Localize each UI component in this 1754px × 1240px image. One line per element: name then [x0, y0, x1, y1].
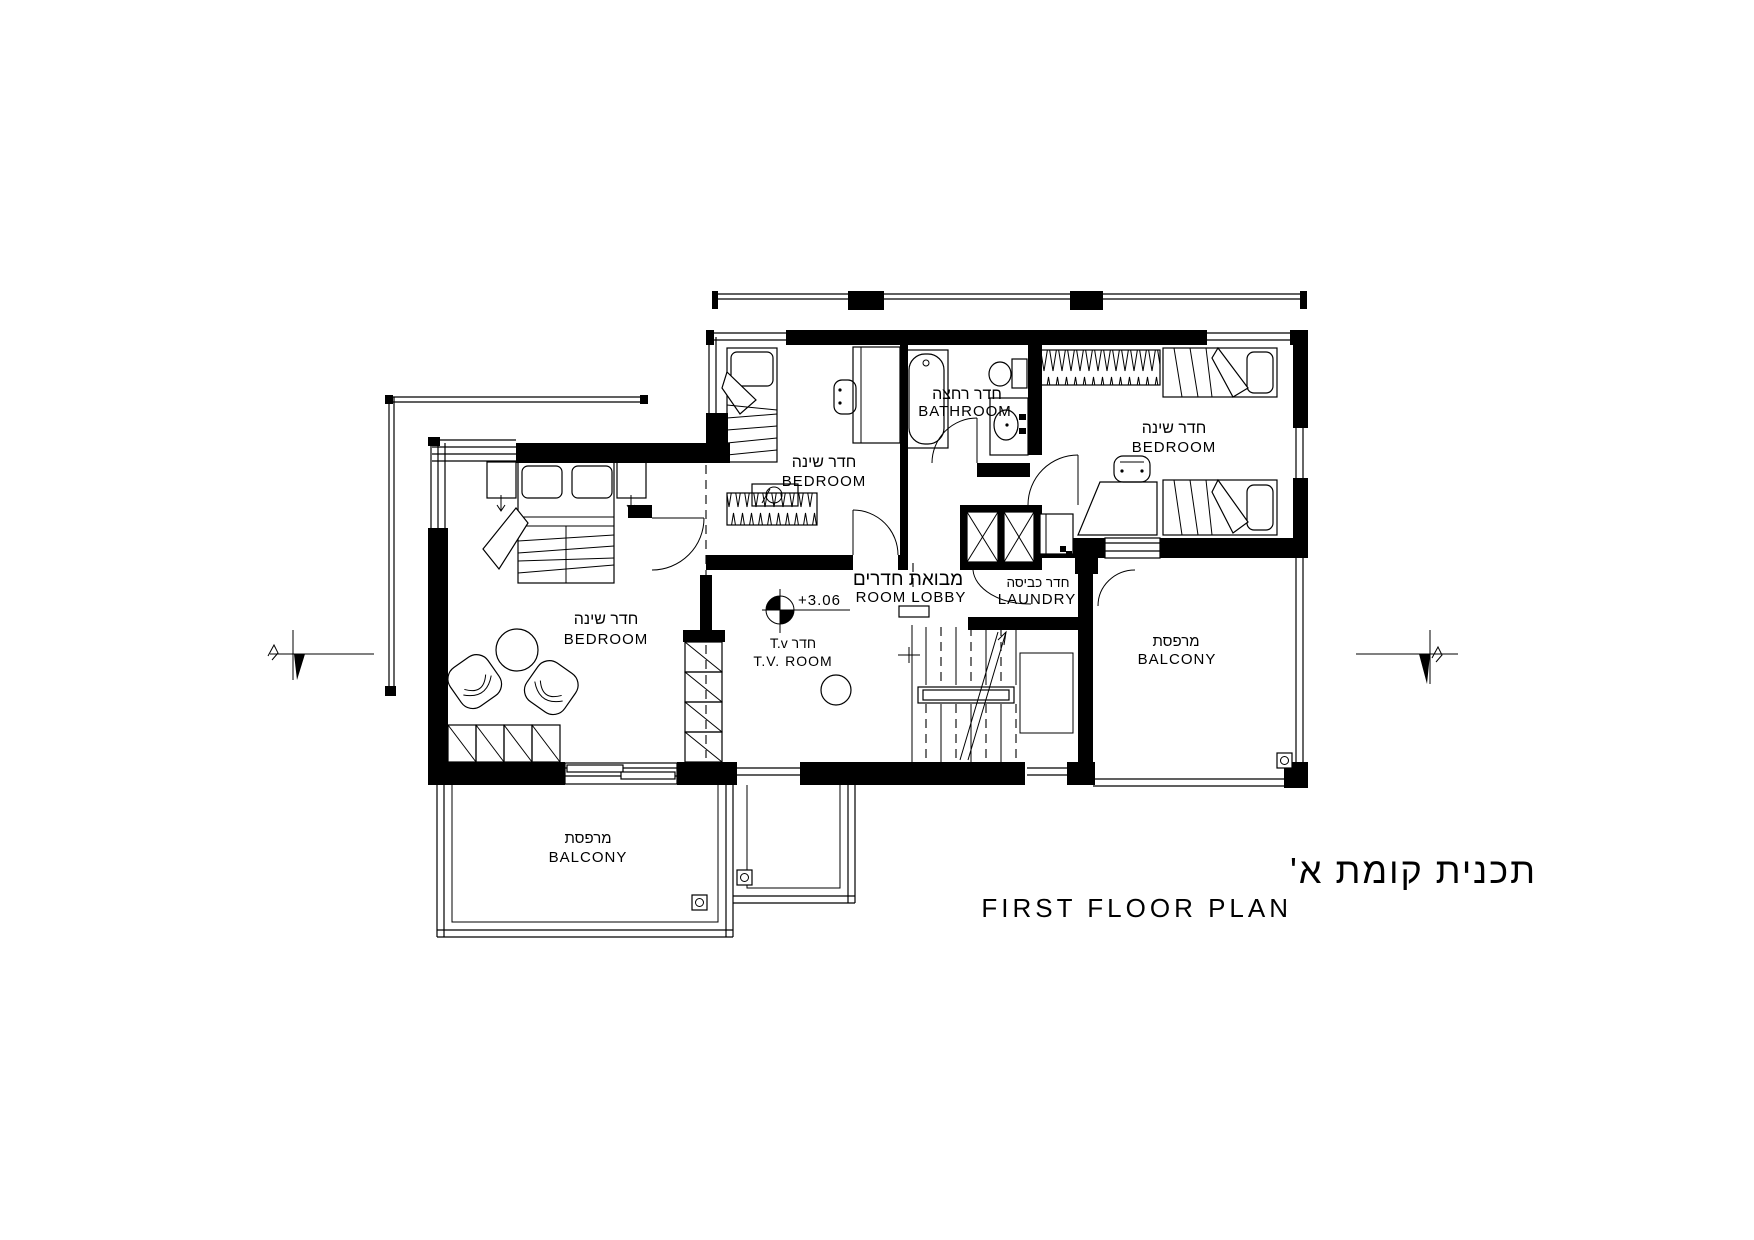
- closet-hanging: [727, 493, 817, 525]
- side-table: [821, 675, 851, 705]
- bedroom-top-label-en: BEDROOM: [782, 473, 867, 490]
- walls: [385, 291, 1308, 788]
- pillow: [522, 466, 562, 498]
- toilet-bowl: [989, 362, 1011, 386]
- top-bedroom-furniture: [722, 347, 900, 525]
- bedroom-master-label-he: חדר שינה: [574, 611, 639, 628]
- bathroom-label-en: BATHROOM: [918, 403, 1012, 420]
- laundry-label-he: חדר כביסה: [1006, 575, 1069, 590]
- balcony-right-label-he: מרפסת: [1152, 633, 1199, 650]
- drain: [737, 870, 752, 885]
- wardrobe-column: [685, 642, 722, 762]
- tub-drain: [923, 360, 929, 366]
- laundry-label-en: LAUNDRY: [998, 591, 1076, 608]
- bedroom-top-door-arc: [853, 510, 898, 555]
- bedroom-right-door-arc: [1028, 455, 1078, 505]
- blanket-fold: [1212, 348, 1248, 397]
- bedroom-master-label-en: BEDROOM: [564, 631, 649, 648]
- section-marker-right: [1356, 630, 1458, 684]
- bathroom-label-he: חדר רחצה: [932, 386, 1002, 403]
- wardrobe: [448, 725, 560, 762]
- nightstand: [617, 462, 646, 498]
- level-value: +3.06: [798, 592, 841, 609]
- toilet-tank: [1012, 359, 1027, 388]
- nightstand: [487, 462, 516, 498]
- blanket-fold: [1212, 480, 1248, 533]
- bedroom-top-label-he: חדר שינה: [792, 454, 857, 471]
- tv-room-label-he: חדר T.v: [770, 635, 816, 651]
- desk-chair: [1114, 456, 1150, 482]
- drain: [1277, 753, 1292, 768]
- balcony-right: [1093, 558, 1303, 786]
- closet-hanging: [1035, 350, 1160, 385]
- drain: [692, 895, 707, 910]
- round-table: [496, 629, 538, 671]
- arrow-down-icon: [497, 495, 505, 511]
- sheet-title-english: FIRST FLOOR PLAN: [981, 893, 1292, 923]
- balcony-lower-label-en: BALCONY: [549, 849, 628, 866]
- floor-plan: +3.06 חדר רחצה BATHROOM חדר שינה BEDROOM…: [0, 0, 1754, 1240]
- master-door-arc: [652, 518, 704, 570]
- pillow: [731, 352, 773, 386]
- tv-room-label-en: T.V. ROOM: [753, 653, 832, 669]
- sheet-title-hebrew: תכנית קומת א': [1290, 850, 1537, 891]
- desk: [1078, 482, 1157, 535]
- drawing-sheet: +3.06 חדר רחצה BATHROOM חדר שינה BEDROOM…: [0, 0, 1754, 1240]
- bedroom-right-label-en: BEDROOM: [1132, 439, 1217, 456]
- pillow: [572, 466, 612, 498]
- blanket-fold: [483, 508, 528, 569]
- title-block: תכנית קומת א' FIRST FLOOR PLAN: [981, 850, 1537, 923]
- laundry-fixtures: [967, 512, 1073, 562]
- bedroom-right-label-he: חדר שינה: [1142, 420, 1207, 437]
- tv-room-furniture: [821, 675, 851, 705]
- balcony-lower-mid: [733, 785, 855, 903]
- balcony-lower-label-he: מרפסת: [564, 830, 611, 847]
- lobby-label-en: ROOM LOBBY: [856, 589, 967, 606]
- balcony-right-label-en: BALCONY: [1138, 651, 1217, 668]
- washing-machine: [1040, 514, 1073, 554]
- pillow: [1247, 352, 1273, 393]
- lobby-label-he: מבואת חדרים: [853, 569, 963, 590]
- desk: [853, 347, 900, 443]
- pillow: [1247, 485, 1273, 530]
- stair-newel: [899, 606, 929, 617]
- level-marker: +3.06: [762, 589, 850, 633]
- armchair: [519, 655, 584, 720]
- section-marker-left: [268, 630, 374, 680]
- stair-direction-arrow: [998, 632, 1006, 645]
- balcony-door-arc: [1098, 570, 1135, 606]
